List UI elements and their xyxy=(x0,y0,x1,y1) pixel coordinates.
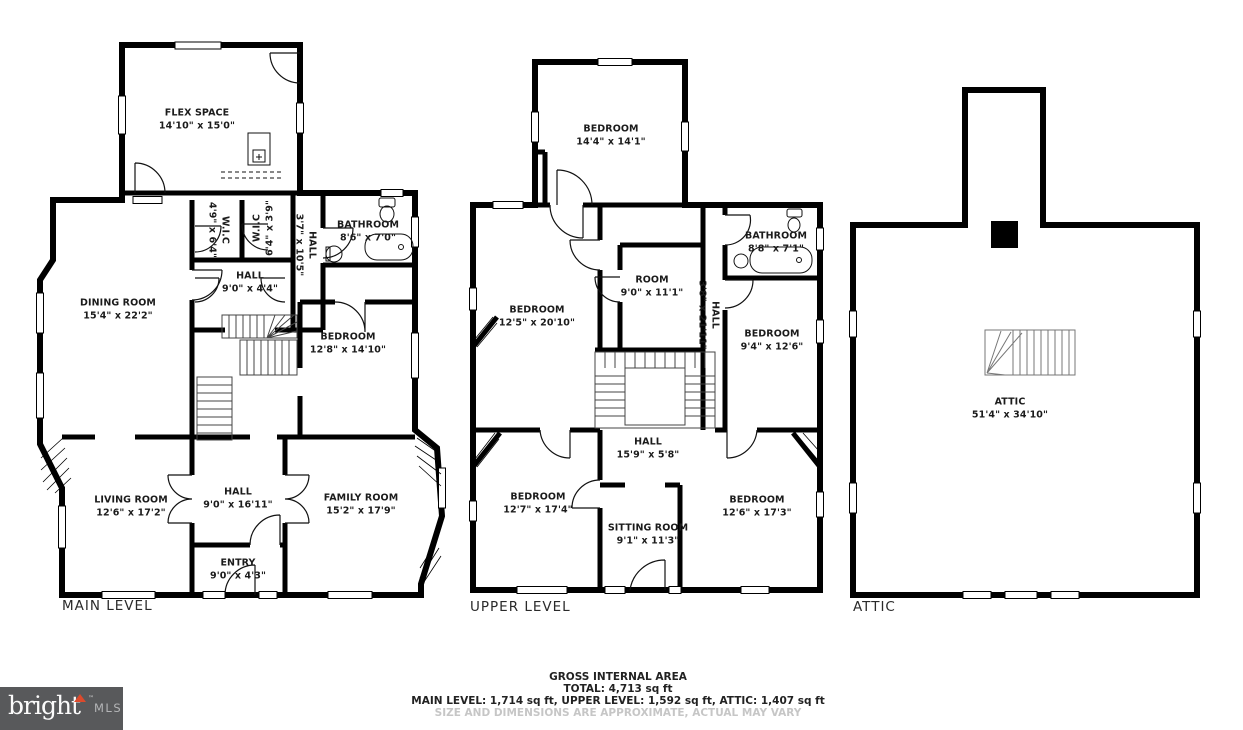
room-dims: 9'4" x 12'6" xyxy=(741,341,804,354)
room-name: FAMILY ROOM xyxy=(324,492,399,505)
room-dims: 12'6" x 17'2" xyxy=(94,507,168,520)
room-dims: 15'2" x 17'9" xyxy=(324,505,399,518)
room-dims: 9'0" x 4'4" xyxy=(222,283,278,296)
total-area: TOTAL: 4,713 sq ft xyxy=(318,683,918,695)
attic-tower-vent xyxy=(1021,88,1027,93)
main-level-stairs xyxy=(197,315,297,440)
room-name: LIVING ROOM xyxy=(94,494,168,507)
bright-logo-wordmark: bright xyxy=(8,691,80,720)
room-label-hall-side: HALL 3'7" x 10'5" xyxy=(292,214,317,277)
room-dims: 9'0" x 11'1" xyxy=(621,287,684,300)
dimensions-disclaimer: SIZE AND DIMENSIONS ARE APPROXIMATE, ACT… xyxy=(318,707,918,719)
room-dims: 9'0" x 16'11" xyxy=(203,499,272,512)
room-label-bedroom-bottom-right: BEDROOM 12'6" x 17'3" xyxy=(722,494,791,519)
room-name: BATHROOM xyxy=(745,230,807,243)
room-label-hall-upper-level: HALL 15'9" x 5'8" xyxy=(617,436,680,461)
mls-logo-text: MLS xyxy=(94,701,122,715)
room-name: BEDROOM xyxy=(503,491,572,504)
room-dims: 51'4" x 34'10" xyxy=(972,409,1048,422)
room-name: BEDROOM xyxy=(741,328,804,341)
room-name: BEDROOM xyxy=(310,331,386,344)
room-label-living-room: LIVING ROOM 12'6" x 17'2" xyxy=(94,494,168,519)
room-dims: 4'9" x 6'4" xyxy=(205,202,218,258)
room-name: DINING ROOM xyxy=(80,297,156,310)
room-label-bedroom-top: BEDROOM 14'4" x 14'1" xyxy=(576,123,645,148)
room-name: BEDROOM xyxy=(499,304,575,317)
room-label-attic: ATTIC 51'4" x 34'10" xyxy=(972,396,1048,421)
upper-level-stairs xyxy=(595,352,715,428)
room-dims: 12'6" x 17'3" xyxy=(722,507,791,520)
room-label-bedroom-right-mid: BEDROOM 9'4" x 12'6" xyxy=(741,328,804,353)
room-label-dining-room: DINING ROOM 15'4" x 22'2" xyxy=(80,297,156,322)
room-dims: 3'8" x 21'11" xyxy=(695,280,708,349)
room-dims: 14'4" x 14'1" xyxy=(576,136,645,149)
room-name: W.I.C xyxy=(251,200,264,256)
room-label-flex-space: FLEX SPACE 14'10" x 15'0" xyxy=(159,107,235,132)
room-name: SITTING ROOM xyxy=(608,522,688,535)
room-dims: 15'9" x 5'8" xyxy=(617,449,680,462)
upper-level-title: UPPER LEVEL xyxy=(470,599,571,615)
room-dims: 12'8" x 14'10" xyxy=(310,344,386,357)
room-name: ATTIC xyxy=(972,396,1048,409)
room-dims: 9'1" x 11'3" xyxy=(608,535,688,548)
room-label-bedroom-main: BEDROOM 12'8" x 14'10" xyxy=(310,331,386,356)
per-level-areas: MAIN LEVEL: 1,714 sq ft, UPPER LEVEL: 1,… xyxy=(318,695,918,707)
room-label-sitting-room: SITTING ROOM 9'1" x 11'3" xyxy=(608,522,688,547)
room-dims: 9'0" x 4'3" xyxy=(210,570,266,583)
room-name: FLEX SPACE xyxy=(159,107,235,120)
room-dims: 8'8" x 7'1" xyxy=(745,243,807,256)
attic-stairs xyxy=(985,330,1075,375)
room-name: HALL xyxy=(222,270,278,283)
room-label-hall-center: HALL 9'0" x 16'11" xyxy=(203,486,272,511)
main-level-title: MAIN LEVEL xyxy=(62,598,153,614)
room-label-bathroom-main: BATHROOM 8'6" x 7'0" xyxy=(337,219,399,244)
main-level-floor-plan-drawing xyxy=(35,38,460,623)
gross-internal-area-heading: GROSS INTERNAL AREA xyxy=(318,671,918,683)
room-dims: 14'10" x 15'0" xyxy=(159,120,235,133)
room-dims: 15'4" x 22'2" xyxy=(80,310,156,323)
room-label-entry: ENTRY 9'0" x 4'3" xyxy=(210,557,266,582)
room-name: HALL xyxy=(203,486,272,499)
attic-floor-plan-drawing xyxy=(845,85,1215,610)
attic-title: ATTIC xyxy=(853,599,896,615)
room-label-bedroom-bottom-left: BEDROOM 12'7" x 17'4" xyxy=(503,491,572,516)
room-label-hall-upper: HALL 9'0" x 4'4" xyxy=(222,270,278,295)
room-dims: 12'7" x 17'4" xyxy=(503,504,572,517)
room-name: W.I.C xyxy=(218,202,231,258)
room-label-hall-side-upper: HALL 3'8" x 21'11" xyxy=(695,280,720,349)
attic-chimney xyxy=(991,221,1018,248)
floor-plan-sheet: FLEX SPACE 14'10" x 15'0" DINING ROOM 15… xyxy=(0,0,1243,730)
room-dims: 3'7" x 10'5" xyxy=(292,214,305,277)
room-label-bathroom-upper: BATHROOM 8'8" x 7'1" xyxy=(745,230,807,255)
room-name: HALL xyxy=(617,436,680,449)
room-label-family-room: FAMILY ROOM 15'2" x 17'9" xyxy=(324,492,399,517)
room-label-wic-right: W.I.C 6'4" x 3'9" xyxy=(251,200,276,256)
room-name: BEDROOM xyxy=(722,494,791,507)
room-dims: 12'5" x 20'10" xyxy=(499,317,575,330)
room-dims: 8'6" x 7'0" xyxy=(337,232,399,245)
room-name: HALL xyxy=(708,280,721,349)
room-name: HALL xyxy=(305,214,318,277)
room-name: ENTRY xyxy=(210,557,266,570)
area-summary: GROSS INTERNAL AREA TOTAL: 4,713 sq ft M… xyxy=(318,671,918,719)
attic-windows xyxy=(850,311,1201,599)
room-dims: 6'4" x 3'9" xyxy=(264,200,277,256)
bright-logo-arrow-icon xyxy=(74,694,86,702)
room-label-wic-left: W.I.C 4'9" x 6'4" xyxy=(205,202,230,258)
room-name: BATHROOM xyxy=(337,219,399,232)
bright-mls-logo: bright ™ MLS xyxy=(0,687,123,730)
attic-walls xyxy=(853,90,1197,595)
room-name: ROOM xyxy=(621,274,684,287)
main-level-kitchenette xyxy=(221,133,283,178)
room-label-room: ROOM 9'0" x 11'1" xyxy=(621,274,684,299)
room-label-bedroom-left: BEDROOM 12'5" x 20'10" xyxy=(499,304,575,329)
room-name: BEDROOM xyxy=(576,123,645,136)
